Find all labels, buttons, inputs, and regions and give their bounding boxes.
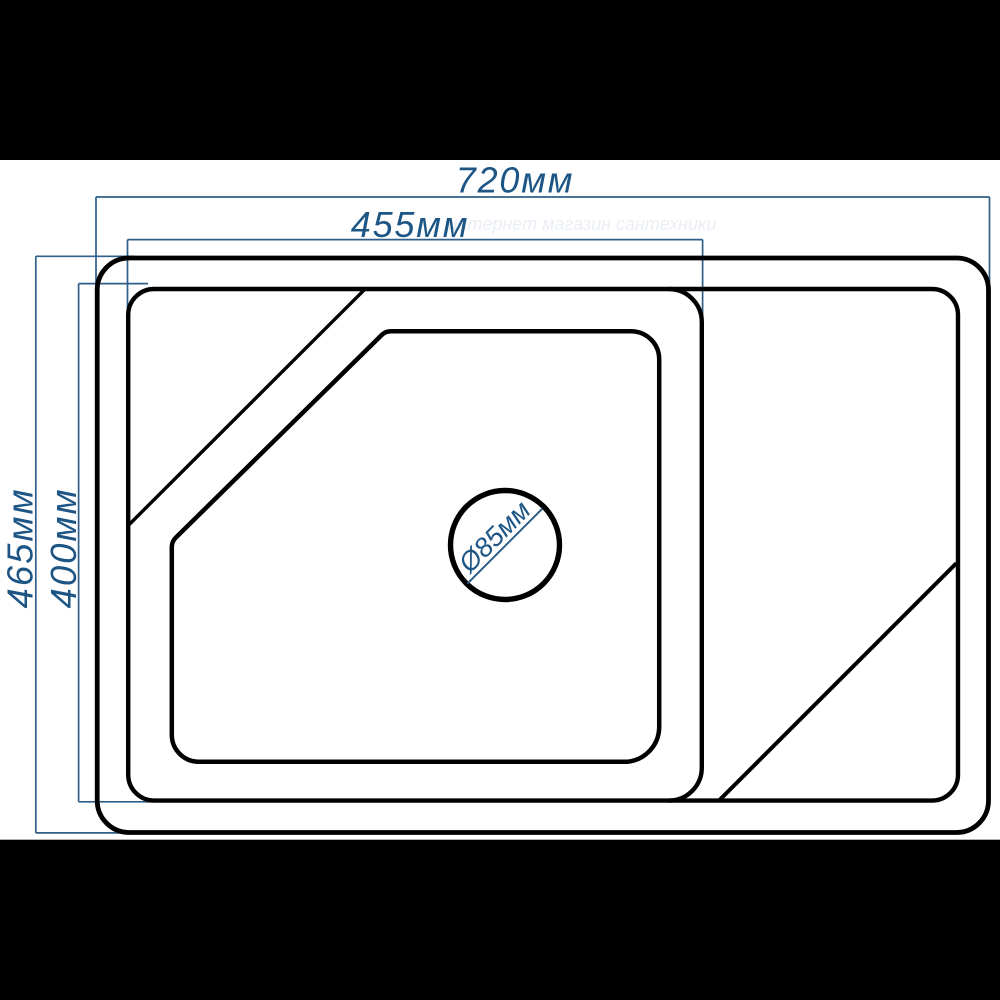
- svg-text:455мм: 455мм: [351, 204, 469, 245]
- svg-text:интернет магазин сантехники: интернет магазин сантехники: [447, 214, 716, 234]
- svg-text:465мм: 465мм: [0, 488, 41, 609]
- svg-text:720мм: 720мм: [456, 160, 574, 201]
- svg-text:400мм: 400мм: [43, 488, 84, 609]
